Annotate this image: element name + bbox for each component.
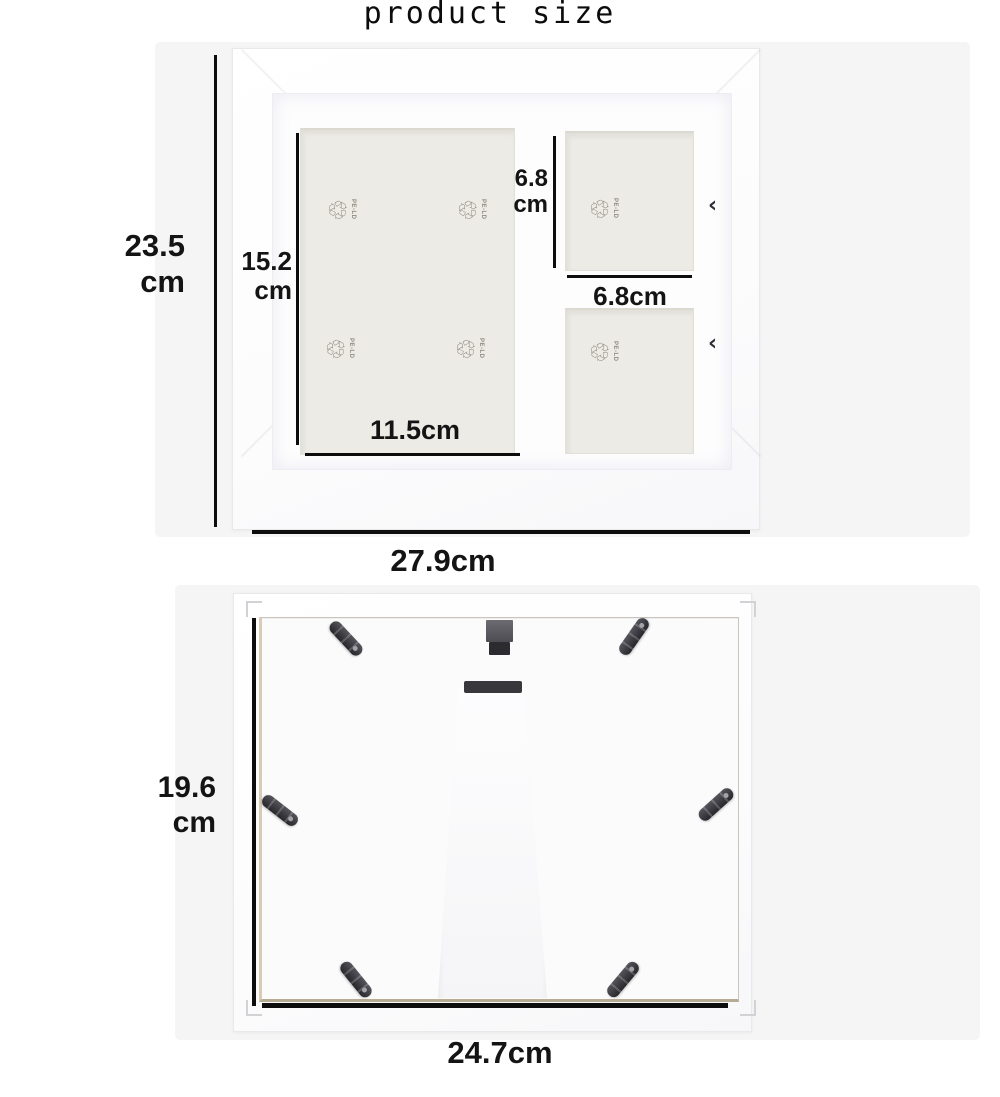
recycle-material-label: PE-LD [612,198,618,219]
recycle-icon: ♲ PE-LD [320,333,352,365]
recycle-icon: ♲ PE-LD [584,193,616,225]
back-height-value: 19.6 [118,770,216,805]
hanging-hook-tab-icon [489,642,510,655]
main-opening-height-value: 15.2 [210,247,292,276]
overall-width-dimension-line [252,530,750,534]
recycle-icon: ♲ PE-LD [584,336,616,368]
retainer-clip-icon: ‹ [708,334,717,354]
retainer-clip-icon: ‹ [708,196,717,216]
recycle-material-label: PE-LD [350,199,356,220]
back-width-dimension-line [262,1003,728,1008]
main-opening-height-dimension-line [296,133,299,445]
overall-height-unit: cm [75,264,185,300]
overall-width-label: 27.9cm [372,544,514,578]
overall-height-label: 23.5 cm [75,228,185,300]
recycle-icon: ♲ PE-LD [450,333,482,365]
back-height-dimension-line [252,618,256,1006]
recycle-material-label: PE-LD [478,338,484,359]
square-opening-height-unit: cm [470,192,548,218]
square-photo-opening-bottom [565,308,694,454]
hanging-hook-icon [486,620,513,642]
back-width-label: 24.7cm [420,1036,580,1070]
page-title: product size [340,0,640,31]
back-height-unit: cm [118,805,216,840]
frame-inner-corner [740,1000,756,1016]
square-opening-height-label: 6.8 cm [470,166,548,218]
main-opening-height-label: 15.2 cm [210,247,292,305]
product-size-diagram: product size ♲ PE-LD ♲ PE-LD ♲ PE-LD ♲ P… [0,0,1000,1097]
recycle-material-label: PE-LD [612,341,618,362]
frame-inner-corner [740,601,756,617]
main-opening-width-dimension-line [305,453,520,456]
frame-inner-corner [246,601,262,617]
square-opening-height-dimension-line [553,136,556,268]
main-opening-width-label: 11.5cm [347,416,483,445]
easel-hinge [464,681,522,693]
recycle-icon: ♲ PE-LD [322,194,354,226]
square-opening-height-value: 6.8 [470,166,548,192]
overall-height-value: 23.5 [75,228,185,264]
main-opening-height-unit: cm [210,276,292,305]
square-opening-width-dimension-line [567,275,692,278]
recycle-material-label: PE-LD [348,338,354,359]
square-opening-width-label: 6.8cm [570,282,690,310]
back-height-label: 19.6 cm [118,770,216,840]
